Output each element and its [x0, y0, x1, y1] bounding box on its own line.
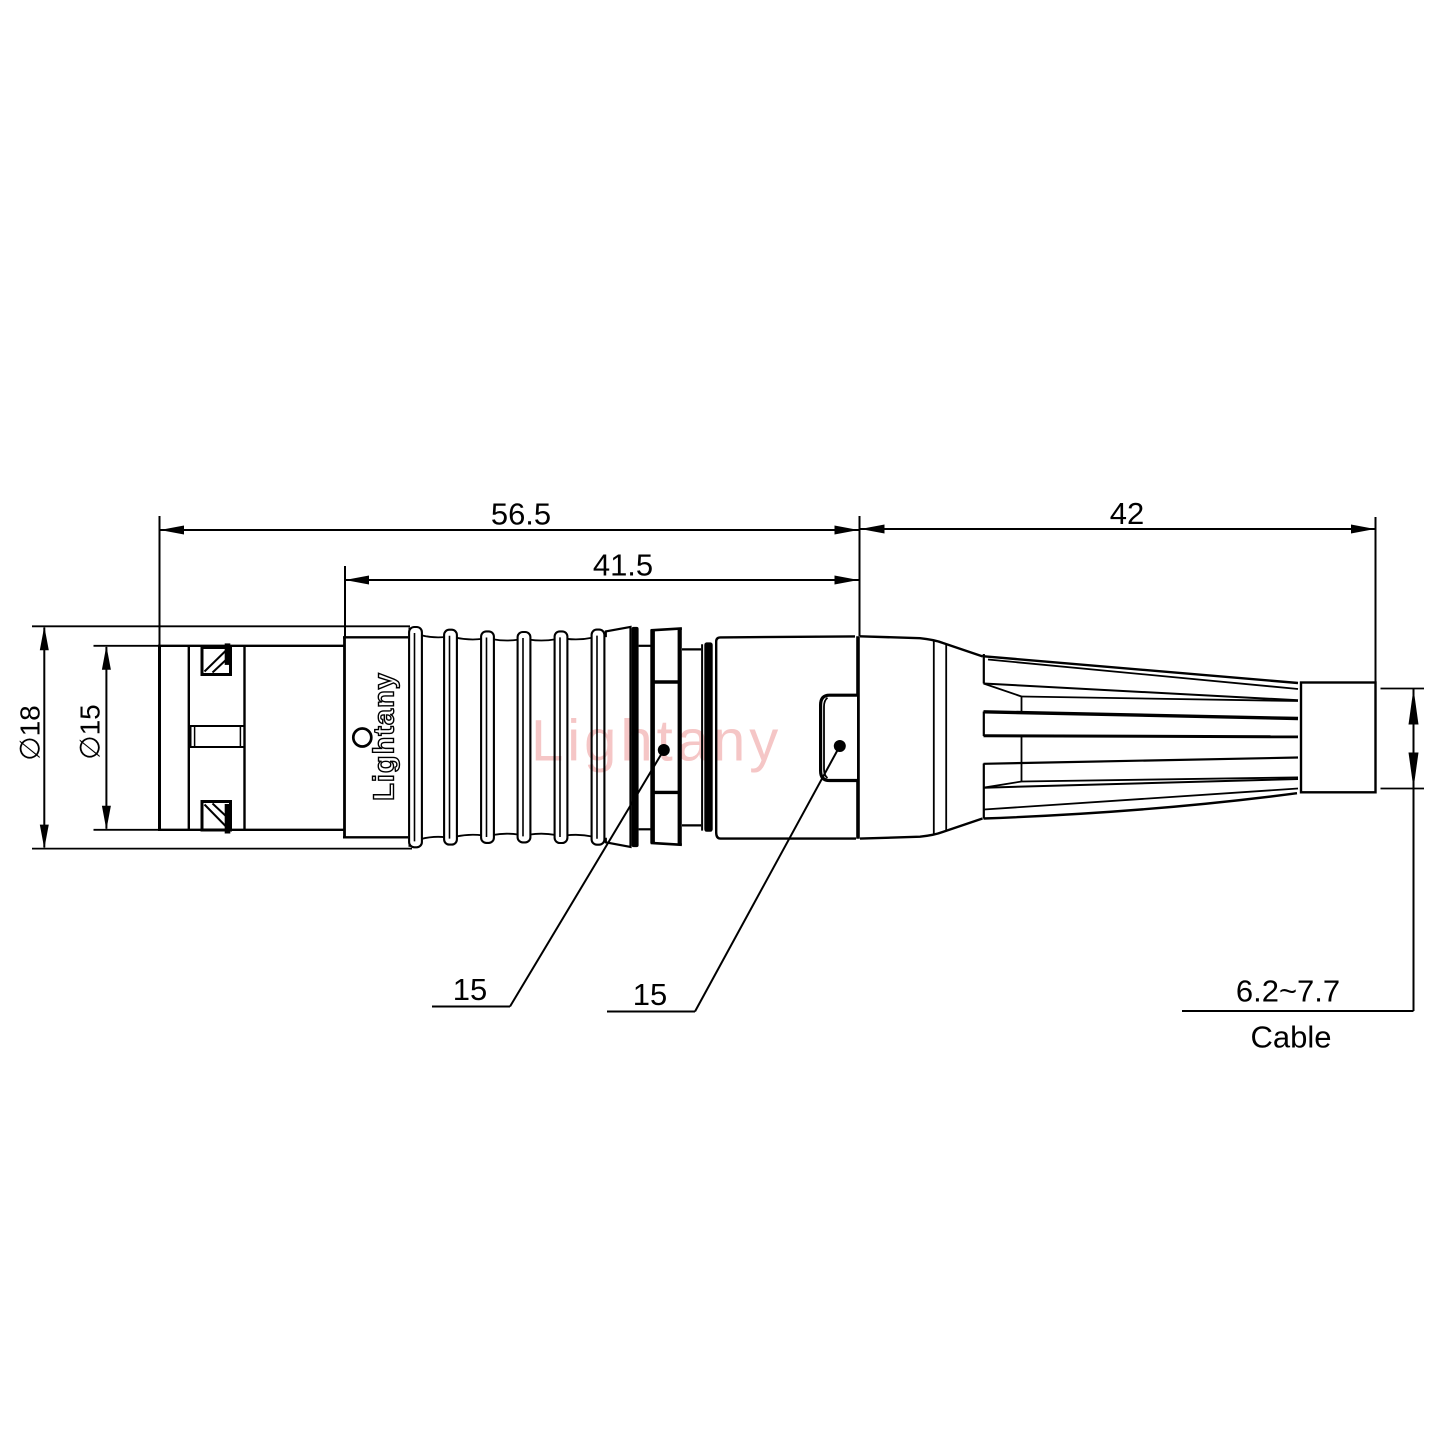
svg-text:Lightany: Lightany — [369, 672, 401, 801]
svg-text:Cable: Cable — [1251, 1020, 1332, 1055]
svg-text:∅15: ∅15 — [75, 704, 106, 760]
svg-text:6.2~7.7: 6.2~7.7 — [1236, 974, 1340, 1009]
svg-text:15: 15 — [453, 972, 487, 1007]
svg-text:∅18: ∅18 — [15, 705, 46, 761]
svg-text:41.5: 41.5 — [593, 548, 653, 583]
svg-text:Lightany: Lightany — [531, 709, 782, 774]
svg-text:56.5: 56.5 — [491, 497, 551, 532]
svg-text:15: 15 — [633, 977, 667, 1012]
svg-text:42: 42 — [1110, 496, 1144, 531]
